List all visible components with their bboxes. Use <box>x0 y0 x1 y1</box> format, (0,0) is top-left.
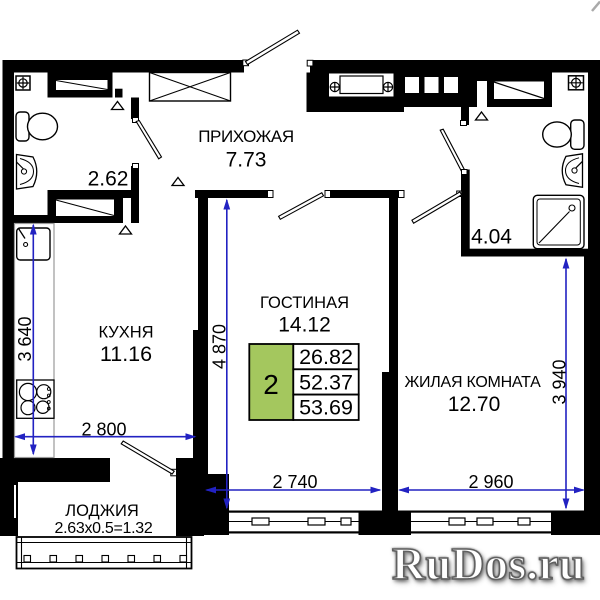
svg-text:52.37: 52.37 <box>299 371 353 395</box>
svg-text:12.70: 12.70 <box>448 393 501 416</box>
svg-text:2.62: 2.62 <box>88 168 129 191</box>
svg-text:26.82: 26.82 <box>299 345 353 369</box>
svg-text:2 740: 2 740 <box>272 472 317 492</box>
svg-text:2 800: 2 800 <box>81 420 126 440</box>
svg-text:2: 2 <box>263 369 279 400</box>
svg-text:ЛОДЖИЯ: ЛОДЖИЯ <box>65 502 139 520</box>
svg-text:14.12: 14.12 <box>278 314 331 337</box>
svg-text:ПРИХОЖАЯ: ПРИХОЖАЯ <box>198 127 294 146</box>
svg-text:53.69: 53.69 <box>299 396 353 420</box>
svg-text:11.16: 11.16 <box>100 342 152 366</box>
svg-text:7.73: 7.73 <box>226 149 267 172</box>
svg-text:ЖИЛАЯ КОМНАТА: ЖИЛАЯ КОМНАТА <box>405 374 542 391</box>
svg-text:КУХНЯ: КУХНЯ <box>98 324 153 342</box>
svg-text:4.04: 4.04 <box>471 226 512 249</box>
svg-text:4 870: 4 870 <box>210 324 230 369</box>
svg-text:ГОСТИНАЯ: ГОСТИНАЯ <box>260 294 349 312</box>
svg-text:2.63x0.5=1.32: 2.63x0.5=1.32 <box>55 520 153 537</box>
svg-text:3 640: 3 640 <box>15 316 35 361</box>
svg-text:2 960: 2 960 <box>468 472 513 492</box>
svg-text:3 940: 3 940 <box>550 359 570 404</box>
